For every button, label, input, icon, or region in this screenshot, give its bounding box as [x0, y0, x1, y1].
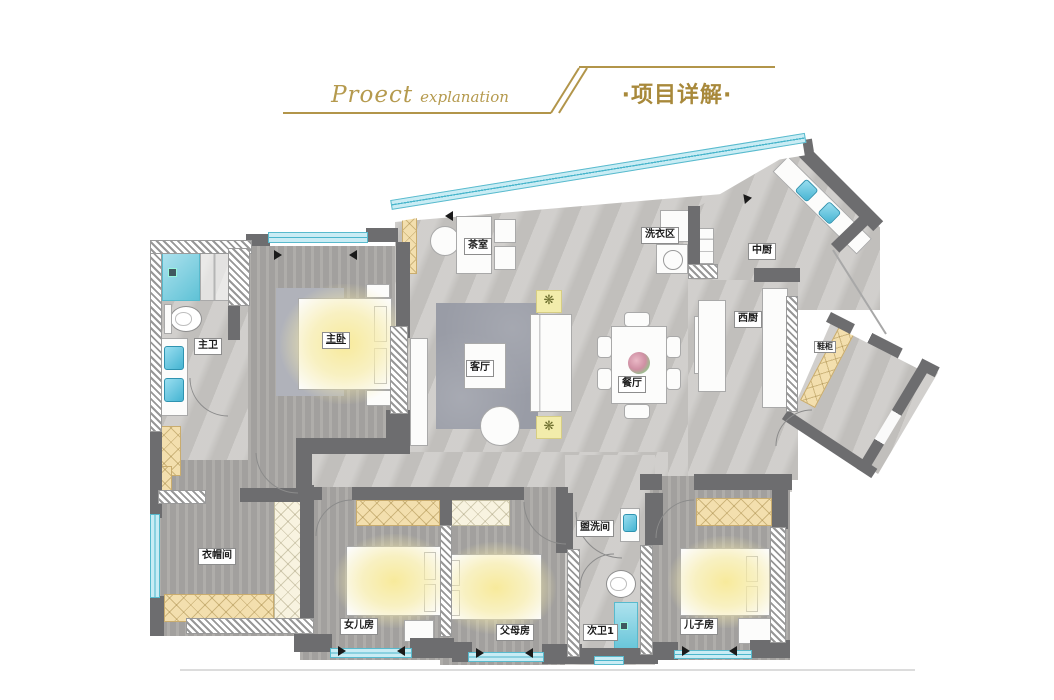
- window: [150, 514, 160, 598]
- hatched-wall: [150, 240, 162, 432]
- room-label-living-room: 客厅: [466, 360, 494, 377]
- hatched-wall: [158, 490, 206, 504]
- room-label-master-bedroom: 主卧: [322, 332, 350, 349]
- dining-chair: [624, 404, 650, 419]
- sofa: [530, 314, 572, 412]
- western-kitchen-counter: [762, 288, 788, 408]
- pillow: [374, 306, 387, 342]
- hatched-wall: [440, 525, 452, 637]
- wall-segment: [640, 474, 662, 490]
- hatched-wall: [640, 545, 653, 655]
- wardrobe-cabinet: [446, 500, 510, 526]
- room-label-chinese-kitchen: 中厨: [748, 243, 776, 260]
- toilet-icon: [606, 570, 636, 598]
- wall-segment: [150, 596, 164, 636]
- room-label-dining-room: 餐厅: [618, 376, 646, 393]
- western-kitchen-counter: [698, 300, 726, 392]
- hatched-wall: [228, 248, 250, 306]
- direction-arrow-icon: [392, 646, 405, 656]
- direction-arrow-icon: [743, 192, 757, 204]
- toilet-tank: [164, 304, 172, 334]
- toilet-icon: [170, 306, 202, 332]
- floor-drain-icon: [620, 622, 628, 630]
- hatched-wall: [390, 326, 408, 414]
- basin-sink: [623, 514, 637, 532]
- wall-segment: [366, 228, 398, 242]
- wall-segment: [228, 304, 240, 340]
- wall-segment: [296, 438, 410, 454]
- window: [268, 232, 368, 243]
- dining-chair: [624, 312, 650, 327]
- tv-cabinet: [410, 338, 428, 446]
- wall-segment: [352, 487, 524, 500]
- room-label-master-bath: 主卫: [194, 338, 222, 355]
- tea-stool: [494, 219, 516, 243]
- wall-segment: [772, 477, 788, 529]
- hatched-wall: [688, 264, 718, 279]
- room-label-western-kitchen: 西厨: [734, 311, 762, 328]
- room-label-laundry-area: 洗衣区: [641, 227, 679, 244]
- wall-segment: [645, 493, 663, 545]
- direction-arrow-icon: [520, 648, 533, 658]
- lounge-chair: [480, 406, 520, 446]
- pillow: [746, 556, 758, 582]
- wall-segment: [294, 634, 332, 652]
- hatched-wall: [786, 296, 798, 412]
- wall-segment: [296, 438, 312, 492]
- room-label-shoe-cabinet: 鞋柜: [814, 341, 836, 353]
- ceiling-light-icon: ❋: [536, 290, 562, 313]
- slide: Proectexplanation ·项目详解·: [0, 0, 1054, 700]
- room-label-parents-room: 父母房: [496, 624, 534, 641]
- pillow: [746, 586, 758, 612]
- hatched-wall: [186, 618, 314, 634]
- wall-segment: [314, 487, 322, 500]
- wall-segment: [556, 493, 573, 553]
- wall-segment: [410, 638, 454, 658]
- nightstand: [366, 284, 390, 298]
- wardrobe-cabinet: [696, 498, 772, 526]
- basin-sink: [164, 346, 184, 370]
- nightstand: [366, 390, 392, 406]
- direction-arrow-icon: [682, 646, 695, 656]
- parents-bed: [446, 554, 542, 620]
- ceiling-light-icon: ❋: [536, 416, 562, 439]
- tea-stool: [494, 246, 516, 270]
- floor-drain-icon: [168, 268, 177, 277]
- cloakroom-wardrobe: [274, 498, 302, 622]
- direction-arrow-icon: [274, 250, 287, 260]
- room-label-washroom: 盥洗间: [576, 520, 614, 537]
- hatched-wall: [770, 527, 786, 643]
- wall-segment: [440, 487, 452, 529]
- dining-chair: [597, 336, 612, 358]
- basin-sink: [164, 378, 184, 402]
- wall-segment: [754, 268, 800, 282]
- wall-segment: [240, 488, 304, 502]
- hatched-wall: [567, 549, 580, 657]
- direction-arrow-icon: [724, 646, 737, 656]
- pillow: [424, 584, 436, 612]
- wardrobe-cabinet: [356, 500, 440, 526]
- room-label-son-room: 儿子房: [680, 618, 718, 635]
- washing-machine-drum-icon: [663, 250, 683, 270]
- pillow: [374, 348, 387, 384]
- direction-arrow-icon: [476, 648, 489, 658]
- wall-segment: [396, 242, 410, 338]
- floor-plan: ❋ ❋: [0, 0, 1054, 700]
- pillow: [424, 552, 436, 580]
- room-label-second-bath: 次卫1: [583, 624, 618, 641]
- dining-chair: [597, 368, 612, 390]
- shower-glass-panel: [200, 251, 230, 301]
- wall-segment: [150, 428, 162, 518]
- direction-arrow-icon: [440, 211, 453, 221]
- dining-chair: [666, 368, 681, 390]
- window: [594, 656, 624, 665]
- room-label-tea-room: 茶室: [464, 238, 492, 255]
- dining-chair: [666, 336, 681, 358]
- direction-arrow-icon: [338, 646, 351, 656]
- room-label-daughter-room: 女儿房: [340, 618, 378, 635]
- room-label-cloakroom: 衣帽间: [198, 548, 236, 565]
- direction-arrow-icon: [344, 250, 357, 260]
- wall-segment: [688, 206, 700, 270]
- flower-centerpiece-icon: [628, 352, 650, 374]
